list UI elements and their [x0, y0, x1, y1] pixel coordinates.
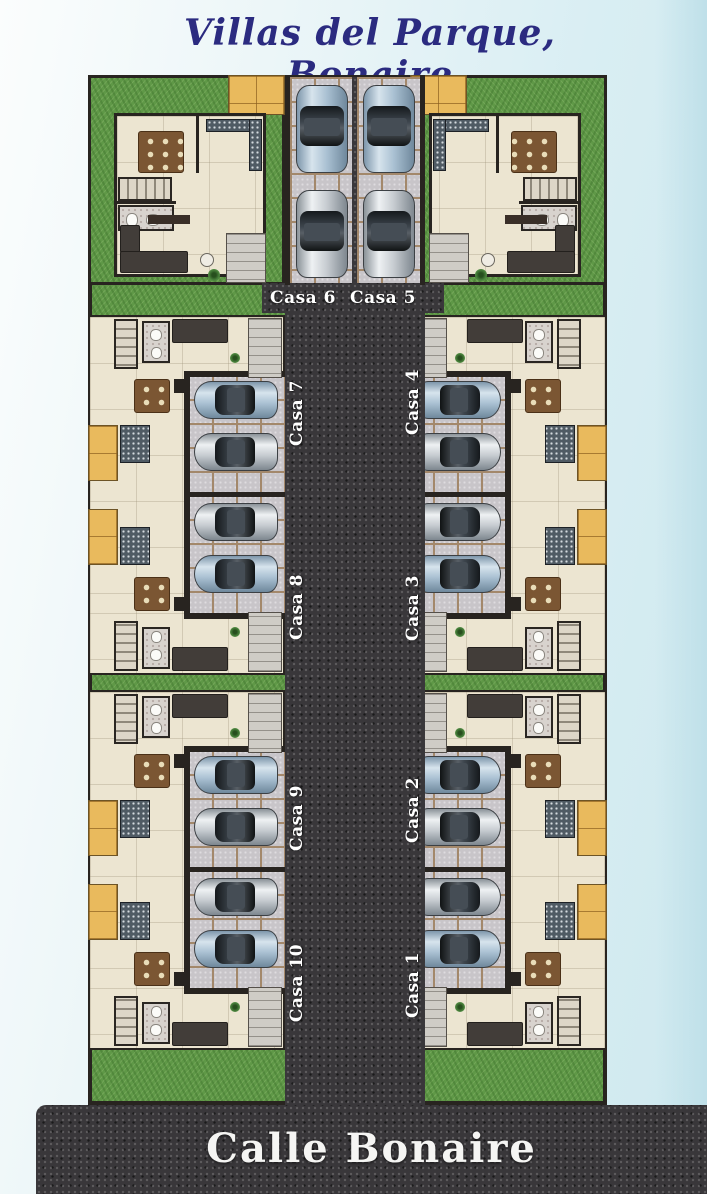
label-casa1: Casa 1: [403, 940, 423, 1030]
sofa: [555, 225, 575, 253]
sofa: [172, 647, 228, 671]
interior-wall: [174, 972, 186, 986]
patio-tiles: [88, 425, 118, 481]
interior-wall: [509, 379, 521, 393]
unit-furniture-casa4: [410, 315, 607, 495]
background-gradient-band: [655, 0, 707, 1194]
interior-wall: [114, 201, 176, 204]
car-blue: [363, 85, 415, 173]
sofa: [172, 694, 228, 718]
plant: [475, 269, 487, 281]
dining-table: [134, 379, 170, 413]
sofa: [120, 225, 140, 253]
entry-walkway: [248, 612, 282, 672]
entry-walkway: [429, 233, 469, 283]
label-casa2: Casa 2: [403, 765, 423, 855]
dining-table: [525, 577, 561, 611]
label-casa9: Casa 9: [287, 773, 307, 863]
label-casa4: Casa 4: [403, 357, 423, 447]
sofa: [172, 1022, 228, 1046]
unit-furniture-casa3: [410, 495, 607, 675]
interior-wall: [196, 113, 199, 173]
patio-tiles: [577, 800, 607, 856]
entry-walkway: [248, 987, 282, 1047]
dining-table: [525, 952, 561, 986]
interior-wall: [174, 379, 186, 393]
stairs: [557, 694, 581, 744]
stairs: [557, 319, 581, 369]
label-casa5: Casa 5: [343, 288, 423, 308]
stairs: [557, 621, 581, 671]
entry-walkway: [248, 693, 282, 753]
block-casa7-casa8: [88, 315, 285, 675]
kitchen-counter: [433, 119, 446, 171]
dining-table: [134, 952, 170, 986]
plant: [230, 353, 240, 363]
label-casa3: Casa 3: [403, 563, 423, 653]
plant: [230, 728, 240, 738]
sofa: [467, 694, 523, 718]
patio-tiles: [88, 509, 118, 565]
plant: [230, 1002, 240, 1012]
interior-wall: [174, 754, 186, 768]
side-table: [200, 253, 214, 267]
plant: [230, 627, 240, 637]
stairs: [114, 996, 138, 1046]
plant: [455, 728, 465, 738]
entry-walkway: [226, 233, 266, 283]
house-plan-casa6: [88, 75, 285, 285]
interior-wall: [509, 972, 521, 986]
unit-furniture-casa2: [410, 690, 607, 870]
bathroom: [142, 321, 170, 363]
bathroom: [525, 1002, 553, 1044]
poster: Villas del Parque, Bonaire: [0, 0, 707, 1194]
dining-table: [511, 131, 557, 173]
label-casa10: Casa 10: [287, 938, 307, 1028]
kitchen-counter: [120, 902, 150, 940]
unit-furniture-casa7: [88, 315, 285, 495]
plant: [208, 269, 220, 281]
sofa: [467, 647, 523, 671]
bathroom: [525, 321, 553, 363]
side-table: [481, 253, 495, 267]
stairs: [114, 621, 138, 671]
driveway-edge-wall: [420, 75, 425, 285]
bathroom: [525, 627, 553, 669]
plant: [455, 627, 465, 637]
bathroom: [525, 696, 553, 738]
car-silver: [363, 190, 415, 278]
sofa: [467, 319, 523, 343]
dining-table: [134, 577, 170, 611]
dining-table: [525, 754, 561, 788]
plant: [455, 1002, 465, 1012]
block-casa4-casa3: [410, 315, 607, 675]
patio-tiles: [577, 884, 607, 940]
label-casa8: Casa 8: [287, 562, 307, 652]
bathroom: [142, 627, 170, 669]
unit-furniture-casa8: [88, 495, 285, 675]
interior-wall: [174, 597, 186, 611]
entry-walkway: [248, 318, 282, 378]
sofa: [467, 1022, 523, 1046]
plant: [455, 353, 465, 363]
patio-tiles: [228, 75, 285, 115]
kitchen-counter: [120, 527, 150, 565]
street-name-label: Calle Bonaire: [36, 1125, 707, 1172]
unit-furniture-casa10: [88, 870, 285, 1050]
stairs: [114, 319, 138, 369]
label-casa6: Casa 6: [263, 288, 343, 308]
console-table: [148, 215, 190, 224]
stairs: [118, 177, 172, 201]
car-silver: [296, 190, 348, 278]
interior-wall: [509, 754, 521, 768]
house-plan-casa5: [410, 75, 607, 285]
kitchen-counter: [120, 800, 150, 838]
sofa: [120, 251, 188, 273]
dining-table: [134, 754, 170, 788]
label-casa7: Casa 7: [287, 368, 307, 458]
kitchen-counter: [120, 425, 150, 463]
bathroom: [142, 696, 170, 738]
unit-furniture-casa9: [88, 690, 285, 870]
patio-tiles: [577, 425, 607, 481]
dining-table: [525, 379, 561, 413]
stairs: [557, 996, 581, 1046]
sofa: [507, 251, 575, 273]
stairs: [523, 177, 577, 201]
kitchen-counter: [545, 527, 575, 565]
car-blue: [296, 85, 348, 173]
sofa: [172, 319, 228, 343]
stairs: [114, 694, 138, 744]
patio-tiles: [577, 509, 607, 565]
kitchen-counter: [545, 800, 575, 838]
dining-table: [138, 131, 184, 173]
kitchen-counter: [249, 119, 262, 171]
console-table: [505, 215, 547, 224]
block-casa9-casa10: [88, 690, 285, 1050]
patio-tiles: [88, 884, 118, 940]
kitchen-counter: [545, 425, 575, 463]
block-casa2-casa1: [410, 690, 607, 1050]
interior-wall: [519, 201, 581, 204]
interior-wall: [496, 113, 499, 173]
bathroom: [142, 1002, 170, 1044]
driveway-edge-wall: [285, 75, 290, 285]
unit-furniture-casa1: [410, 870, 607, 1050]
kitchen-counter: [545, 902, 575, 940]
patio-tiles: [88, 800, 118, 856]
street-calle-bonaire: Calle Bonaire: [36, 1105, 707, 1194]
interior-wall: [509, 597, 521, 611]
